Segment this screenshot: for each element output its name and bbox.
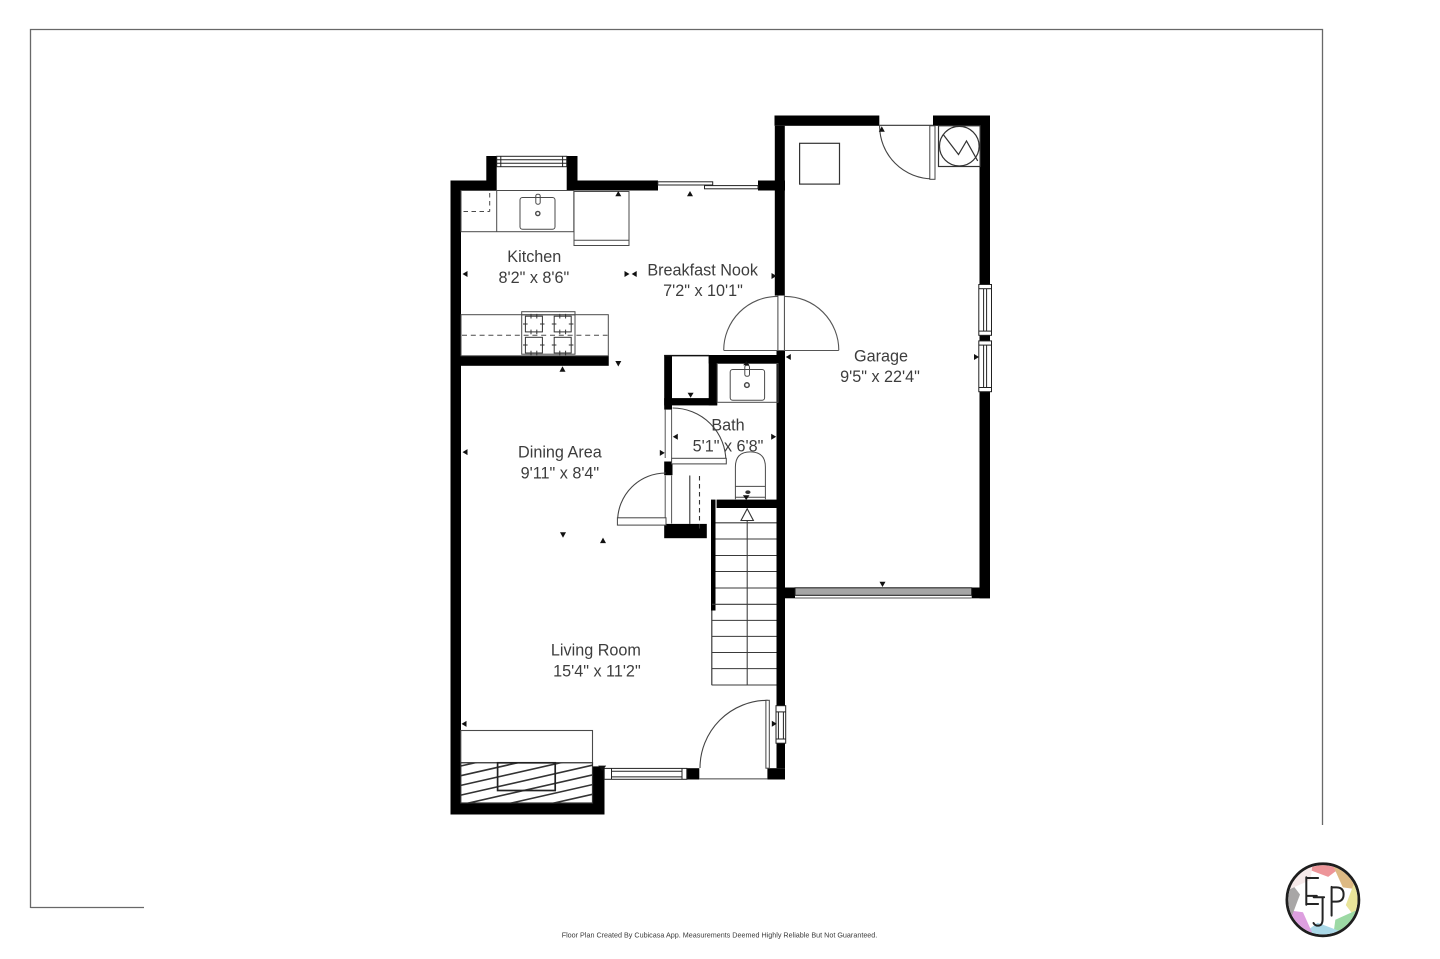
svg-text:9'11" x 8'4": 9'11" x 8'4" xyxy=(521,465,600,483)
svg-text:Kitchen: Kitchen xyxy=(507,248,561,266)
svg-text:Breakfast Nook: Breakfast Nook xyxy=(647,261,759,279)
svg-text:15'4" x 11'2": 15'4" x 11'2" xyxy=(553,662,641,680)
svg-text:Floor Plan Created By Cubicasa: Floor Plan Created By Cubicasa App. Meas… xyxy=(562,931,878,940)
svg-text:8'2" x 8'6": 8'2" x 8'6" xyxy=(499,269,570,287)
svg-text:Garage: Garage xyxy=(854,347,908,365)
svg-text:Dining Area: Dining Area xyxy=(518,444,602,462)
svg-text:5'1" x 6'8": 5'1" x 6'8" xyxy=(693,437,764,455)
svg-text:Living Room: Living Room xyxy=(551,642,641,660)
svg-text:7'2" x 10'1": 7'2" x 10'1" xyxy=(663,282,743,300)
svg-text:9'5" x 22'4": 9'5" x 22'4" xyxy=(840,368,920,386)
svg-text:Bath: Bath xyxy=(711,417,744,435)
